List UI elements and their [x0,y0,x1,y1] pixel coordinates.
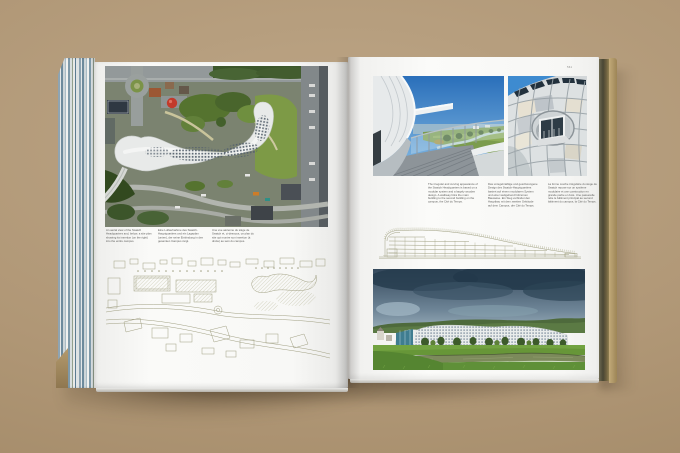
right-caption-fr-text: La forme courbe irrégulière du siège de … [548,183,598,204]
site-plan-drawing [106,256,330,360]
section-drawing [377,226,583,264]
right-caption-fr: La forme courbe irrégulière du siège de … [548,183,637,221]
page-stack-bottom-left [96,388,348,392]
section-drawing-image [377,226,583,264]
right-caption-de-text: Das unregelmäßige und geschwungene Desig… [488,183,538,208]
book-fore-edge-pages [58,58,95,388]
panorama-photo [373,269,585,370]
terrace-photo [373,76,504,176]
panorama-photo-image [373,269,585,370]
site-plan-image [106,256,330,360]
left-caption-fr: Une vue aérienne du siège de Swatch et, … [212,229,294,254]
terrace-photo-image [373,76,504,176]
photo-of-open-book: An aerial view of the Swatch Headquarter… [0,0,680,453]
left-caption-en-text: An aerial view of the Swatch Headquarter… [106,229,152,243]
facade-detail-image [508,76,587,176]
right-caption-en-text: The irregular and curving appearance of … [428,183,478,204]
left-caption-fr-text: Une vue aérienne du siège de Swatch et, … [212,229,258,243]
page-number: 561 [567,66,577,72]
left-caption-de-text: Eine Luftaufnahme des Swatch-Hauptquarti… [158,229,204,243]
aerial-photo [105,66,328,227]
facade-detail-photo [508,76,587,176]
page-stack-bottom-right [350,379,599,383]
page-number-text: 561 [567,66,572,69]
aerial-photo-image [105,66,328,227]
